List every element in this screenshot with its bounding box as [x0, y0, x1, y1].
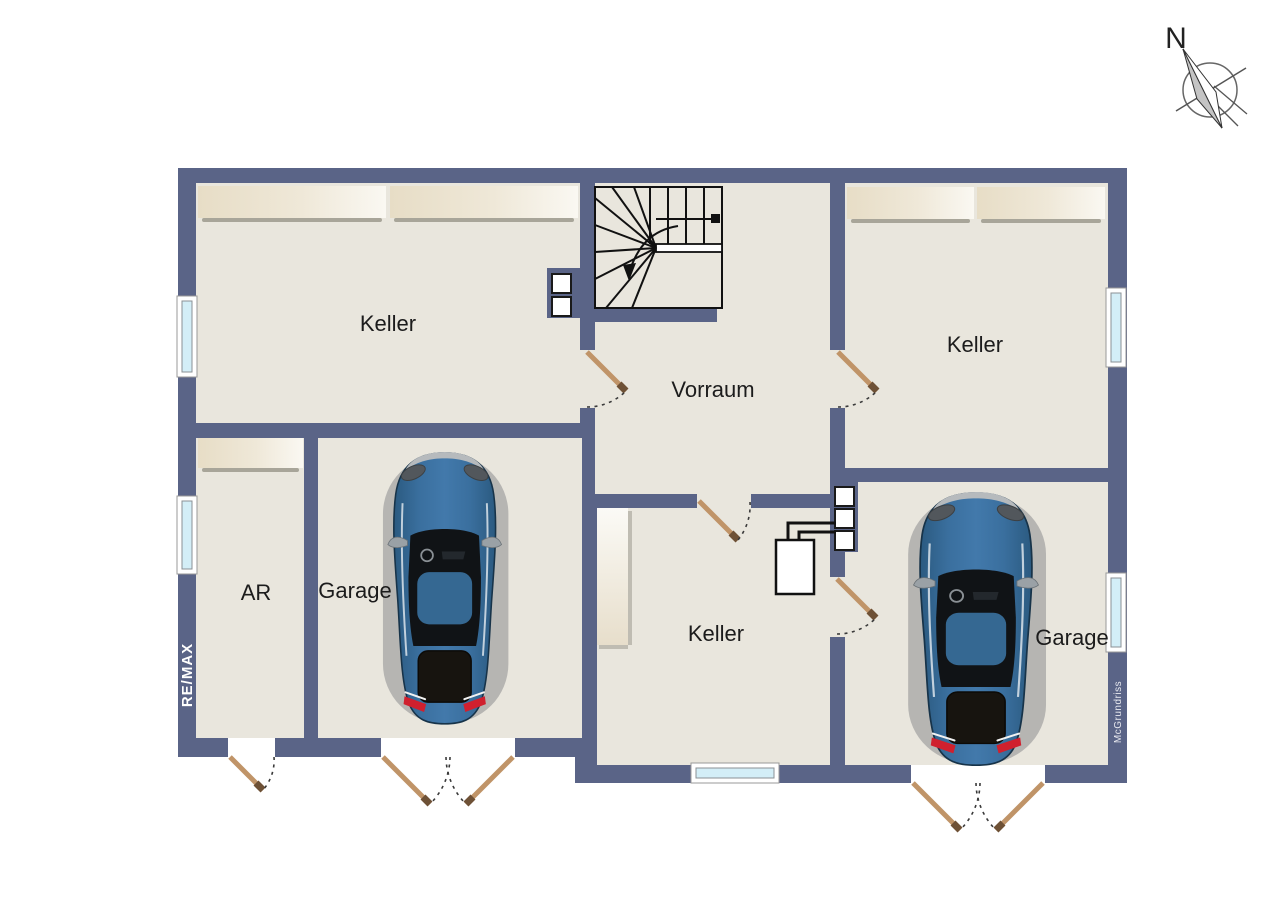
closet-ar	[198, 438, 303, 468]
stair-rail	[656, 244, 722, 252]
window-left-lower	[177, 496, 197, 574]
closet-keller-tl-1	[198, 186, 386, 218]
room-keller-top-right-floor	[845, 183, 1108, 468]
window-right-upper	[1106, 288, 1126, 367]
room-label-keller-middle: Keller	[688, 621, 744, 646]
room-vorraum-floor	[595, 183, 830, 494]
mcgrundriss-watermark: McGrundriss	[1113, 681, 1124, 743]
room-label-vorraum: Vorraum	[671, 377, 754, 402]
window-left-upper	[177, 296, 197, 377]
room-label-keller-top-right: Keller	[947, 332, 1003, 357]
shelf-keller-middle	[597, 508, 628, 645]
chimney-stairwell	[547, 268, 580, 318]
closet-keller-tr-1	[847, 187, 974, 219]
room-label-keller-top-left: Keller	[360, 311, 416, 336]
closet-keller-tl-2	[390, 186, 578, 218]
room-label-garage-right: Garage	[1035, 625, 1108, 650]
closet-keller-tr-2	[977, 187, 1105, 219]
room-label-garage-left: Garage	[318, 578, 391, 603]
room-label-ar: AR	[241, 580, 272, 605]
floorplan-canvas: Keller Vorraum Keller AR Garage Keller G…	[0, 0, 1280, 905]
chimney-boiler	[830, 480, 858, 552]
remax-watermark: RE/MAX	[179, 643, 196, 707]
car-right-garage	[908, 492, 1046, 765]
window-bottom-middle	[691, 763, 779, 783]
floorplan-page: Keller Vorraum Keller AR Garage Keller G…	[0, 0, 1280, 905]
stair-wall-stub	[580, 308, 717, 322]
stair-entry-marker	[711, 214, 720, 223]
window-right-lower	[1106, 573, 1126, 652]
car-left-garage	[383, 452, 508, 724]
